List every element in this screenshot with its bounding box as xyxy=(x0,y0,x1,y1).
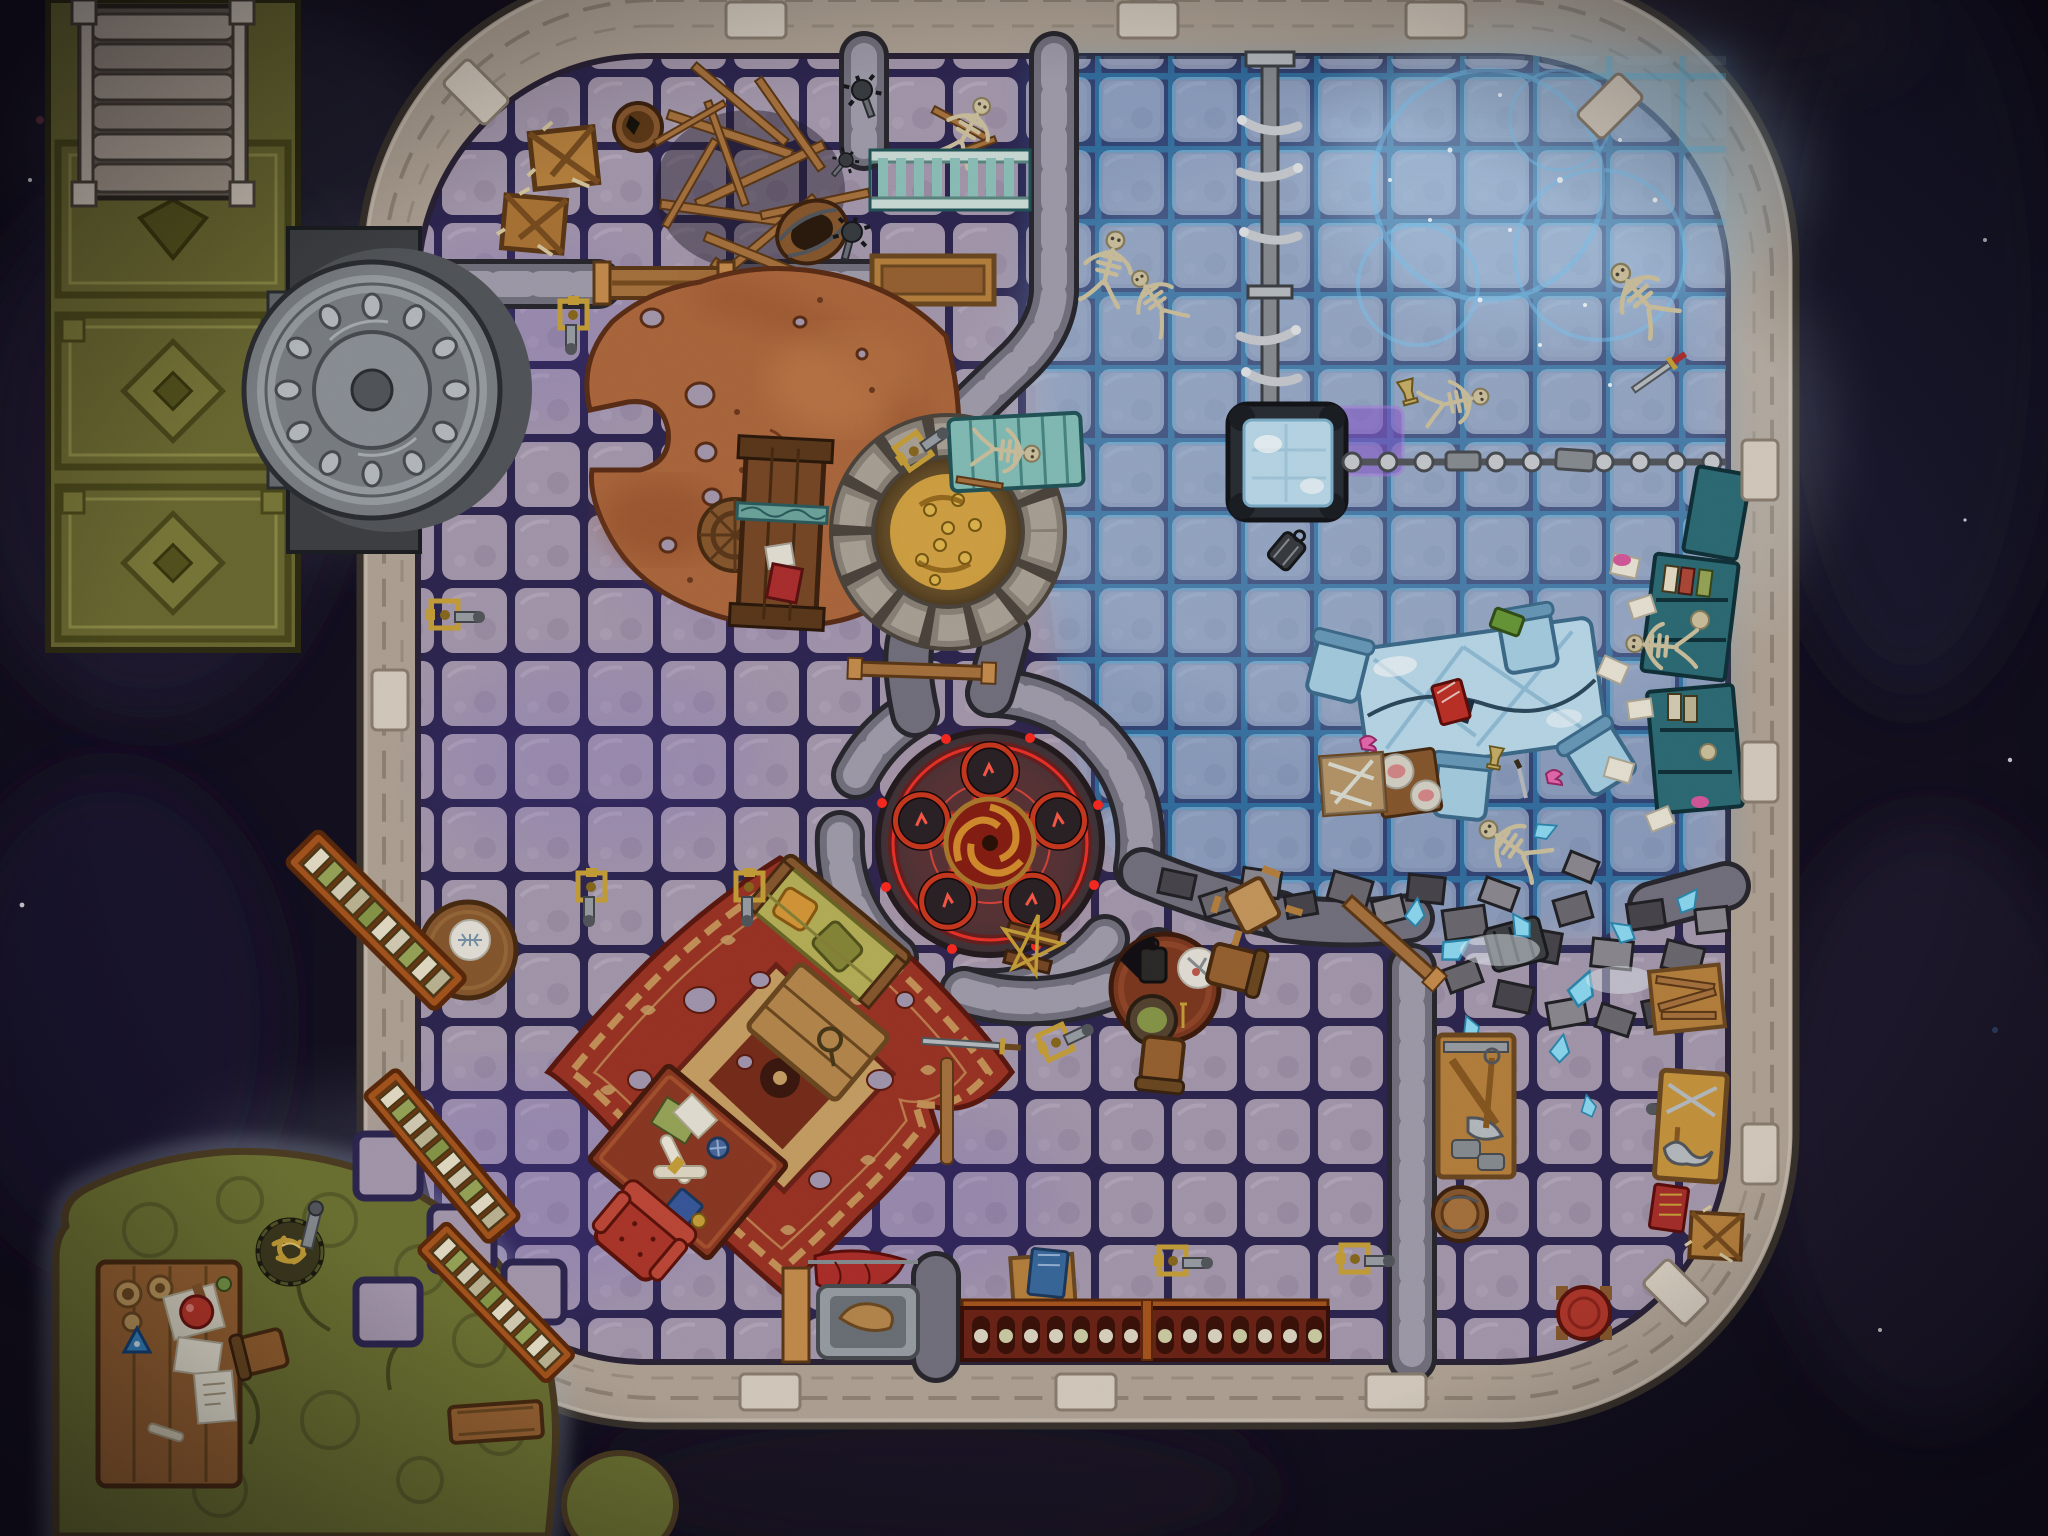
vignette xyxy=(0,0,2048,1536)
battle-map-canvas[interactable] xyxy=(0,0,2048,1536)
map-viewport[interactable] xyxy=(0,0,2048,1536)
